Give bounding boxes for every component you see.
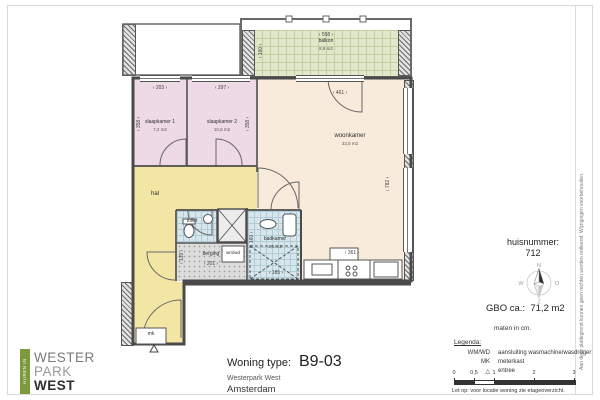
- legend-title: Legenda:: [454, 339, 481, 346]
- logo-wester: WESTER: [34, 350, 95, 365]
- scale-seg-1: [454, 380, 476, 385]
- legend-value-mk: meterkast: [498, 359, 524, 365]
- scale-seg-3: [494, 380, 536, 385]
- scale-tickmark: [574, 378, 575, 384]
- huisnummer-value: 712: [488, 248, 578, 258]
- logo-west: WEST: [34, 378, 75, 393]
- label-balkon: balkon: [296, 39, 356, 45]
- legend-key-mk: MK: [454, 359, 490, 365]
- dim-berging-width: ‹ 201 ›: [189, 261, 233, 267]
- window-slaapkamer2: [192, 75, 250, 82]
- dim-woonkamer-width: ‹ 461 ›: [315, 90, 365, 96]
- floorplan-walls-graphic: [0, 0, 600, 400]
- label-badkamer-area: 4,5 m2: [250, 244, 300, 249]
- dim-slaapkamer2-depth: ‹ 358 ›: [245, 104, 251, 144]
- dim-badkamer-width: ‹ 185 ›: [256, 270, 296, 276]
- scale-tick-0: 0: [452, 370, 455, 376]
- window-balkon-door: [296, 75, 364, 82]
- label-balkon-area: 8,9 m2: [296, 46, 356, 51]
- legend-key-wmwd: WM/WD: [454, 350, 490, 356]
- attention-note: Let op: voor locatie woning zie etageove…: [452, 388, 565, 394]
- project-name: Westerpark West: [227, 375, 280, 382]
- scale-tickmark: [474, 378, 475, 384]
- legend-value-wmwd: aansluiting wasmachine/wasdroger: [498, 350, 591, 356]
- project-city: Amsterdam: [227, 384, 276, 395]
- scale-bar: 0 0,5 1 2 3: [452, 370, 576, 386]
- floorplan-sheet: balkon 8,9 m2 ‹ 558 › ‹ 160 › slaapkamer…: [0, 0, 600, 400]
- scale-tickmark: [494, 378, 495, 384]
- label-woonkamer-area: 33,5 m2: [318, 141, 382, 146]
- dim-balkon-depth: ‹ 160 ›: [258, 31, 264, 71]
- scale-tick-2: 2: [532, 370, 535, 376]
- compass-east: O: [555, 281, 560, 287]
- dim-slaapkamer1-depth: ‹ 358 ›: [136, 104, 142, 144]
- label-hal: hal: [140, 191, 170, 198]
- dim-woonkamer-depth: ‹ 782 ›: [385, 164, 391, 204]
- dim-slaapkamer1-width: ‹ 203 ›: [138, 85, 182, 91]
- gbo-line: GBO ca.: 71,2 m2: [486, 303, 565, 314]
- window-woonkamer-upper: [403, 88, 413, 154]
- scale-tick-3: 3: [572, 370, 575, 376]
- logo-park: PARK: [34, 364, 72, 379]
- scale-tickmark: [454, 378, 455, 384]
- compass-icon: N O Z W: [518, 262, 560, 304]
- dim-balkon-width: ‹ 558 ›: [296, 32, 356, 38]
- units-note: maten in cm.: [494, 325, 531, 332]
- entree-triangle-marker: [150, 345, 158, 352]
- label-meterkast: mk: [136, 332, 166, 338]
- scale-tick-05: 0,5: [470, 370, 478, 376]
- compass-north: N: [537, 263, 541, 269]
- huisnummer-label: huisnummer:: [488, 237, 578, 247]
- label-badkamer: badkamer: [250, 237, 300, 243]
- scale-seg-2: [474, 380, 496, 385]
- side-disclaimer: Aan deze plattegrond kunnen geen rechten…: [579, 30, 585, 370]
- logo-green-bar: HUREN IN: [20, 349, 30, 394]
- compass-west: W: [518, 281, 524, 287]
- dim-kitchen-width: ‹ 361 ›: [322, 250, 382, 256]
- window-slaapkamer1: [140, 75, 180, 82]
- gbo-value: 71,2 m2: [530, 303, 564, 314]
- woning-type-label: Woning type:: [227, 357, 291, 369]
- window-woonkamer-lower: [403, 168, 413, 252]
- scale-tick-1: 1: [492, 370, 495, 376]
- gbo-label: GBO ca.:: [486, 303, 525, 314]
- label-toilet: toilet: [177, 219, 207, 225]
- dim-slaapkamer2-width: ‹ 297 ›: [194, 85, 250, 91]
- label-woonkamer: woonkamer: [318, 133, 382, 140]
- door-arcs: [143, 78, 362, 338]
- dim-badkamer-depth: ‹ 160 ›: [249, 219, 255, 259]
- scale-seg-4: [534, 380, 576, 385]
- woning-type-code: B9-03: [299, 353, 342, 371]
- dim-berging-depth: ‹ 139 ›: [179, 237, 185, 277]
- logo-tagline: HUREN IN: [20, 349, 30, 394]
- scale-tickmark: [534, 378, 535, 384]
- label-washer: wm/wd: [222, 250, 244, 255]
